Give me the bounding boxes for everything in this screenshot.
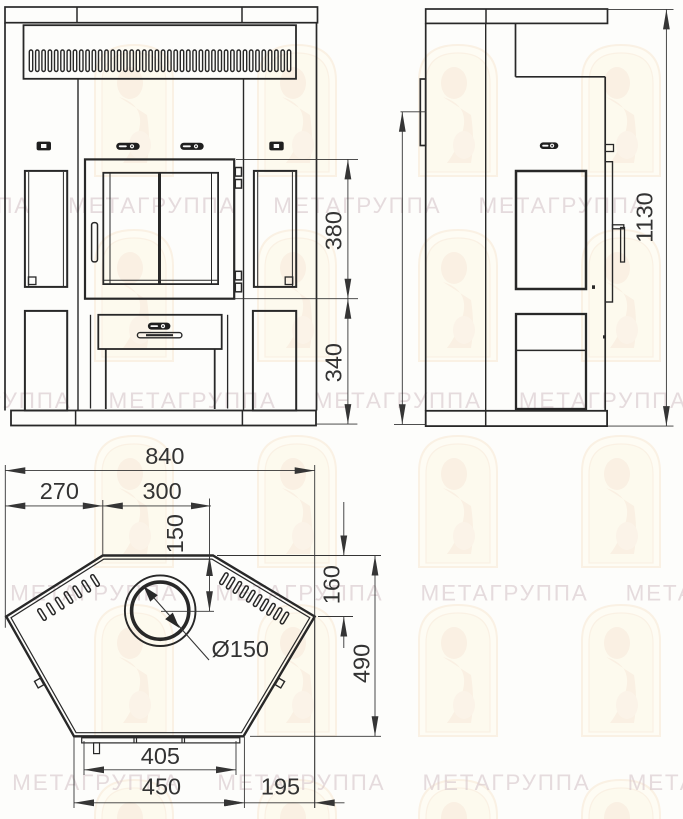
svg-text:150: 150 bbox=[162, 514, 188, 553]
svg-text:МЕТАГРУППА МЕТАГРУППА МЕТАГРУП: МЕТАГРУППА МЕТАГРУППА МЕТАГРУППА МЕТАГРУ… bbox=[0, 770, 683, 795]
svg-text:195: 195 bbox=[261, 774, 300, 800]
svg-text:1130: 1130 bbox=[632, 192, 658, 243]
svg-text:300: 300 bbox=[142, 478, 181, 504]
svg-text:840: 840 bbox=[145, 443, 184, 469]
svg-text:405: 405 bbox=[141, 743, 180, 769]
svg-text:490: 490 bbox=[349, 644, 375, 683]
svg-text:450: 450 bbox=[142, 774, 181, 800]
svg-text:270: 270 bbox=[40, 478, 79, 504]
svg-text:160: 160 bbox=[318, 565, 344, 604]
svg-text:Ø150: Ø150 bbox=[212, 636, 270, 662]
svg-text:380: 380 bbox=[321, 211, 347, 250]
svg-text:340: 340 bbox=[321, 343, 347, 382]
